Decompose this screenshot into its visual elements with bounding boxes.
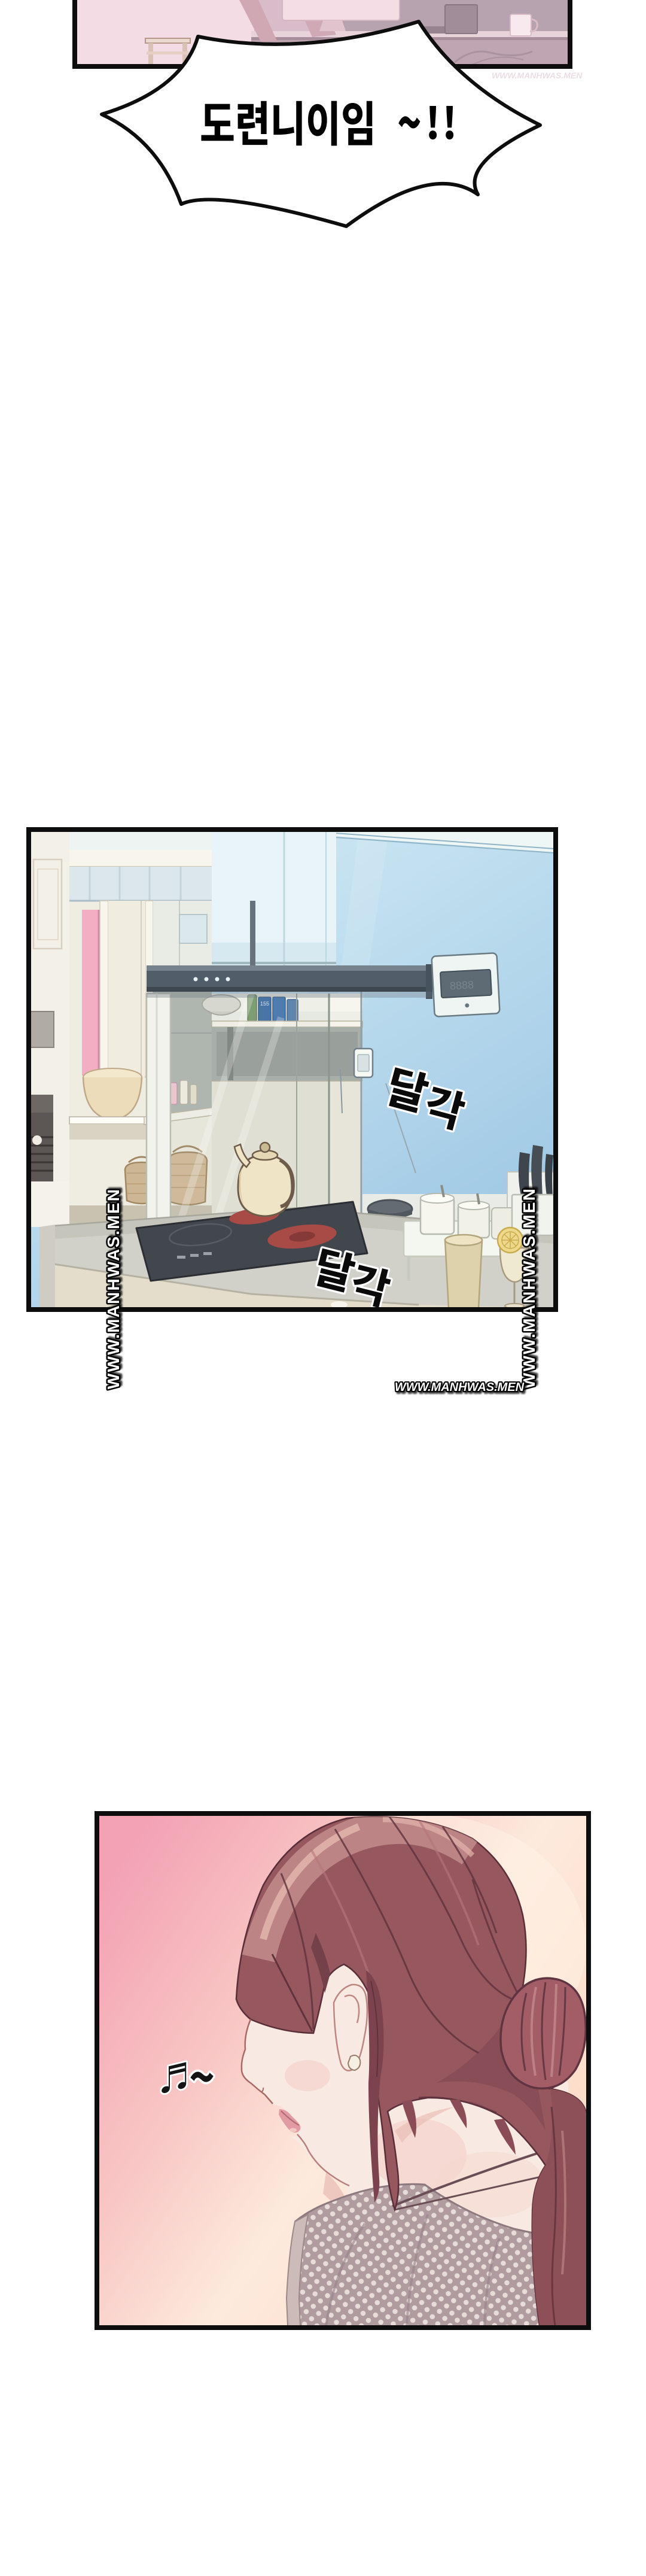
svg-text:8888: 8888 (450, 979, 474, 992)
svg-text:WWW.MANHWAS.MEN: WWW.MANHWAS.MEN (104, 1188, 123, 1389)
svg-text:WWW.MANHWAS.MEN: WWW.MANHWAS.MEN (395, 1381, 525, 1394)
svg-text:WWW.MANHWAS.MEN: WWW.MANHWAS.MEN (492, 71, 583, 80)
svg-text:WWW.MANHWAS.MEN: WWW.MANHWAS.MEN (520, 1187, 538, 1389)
